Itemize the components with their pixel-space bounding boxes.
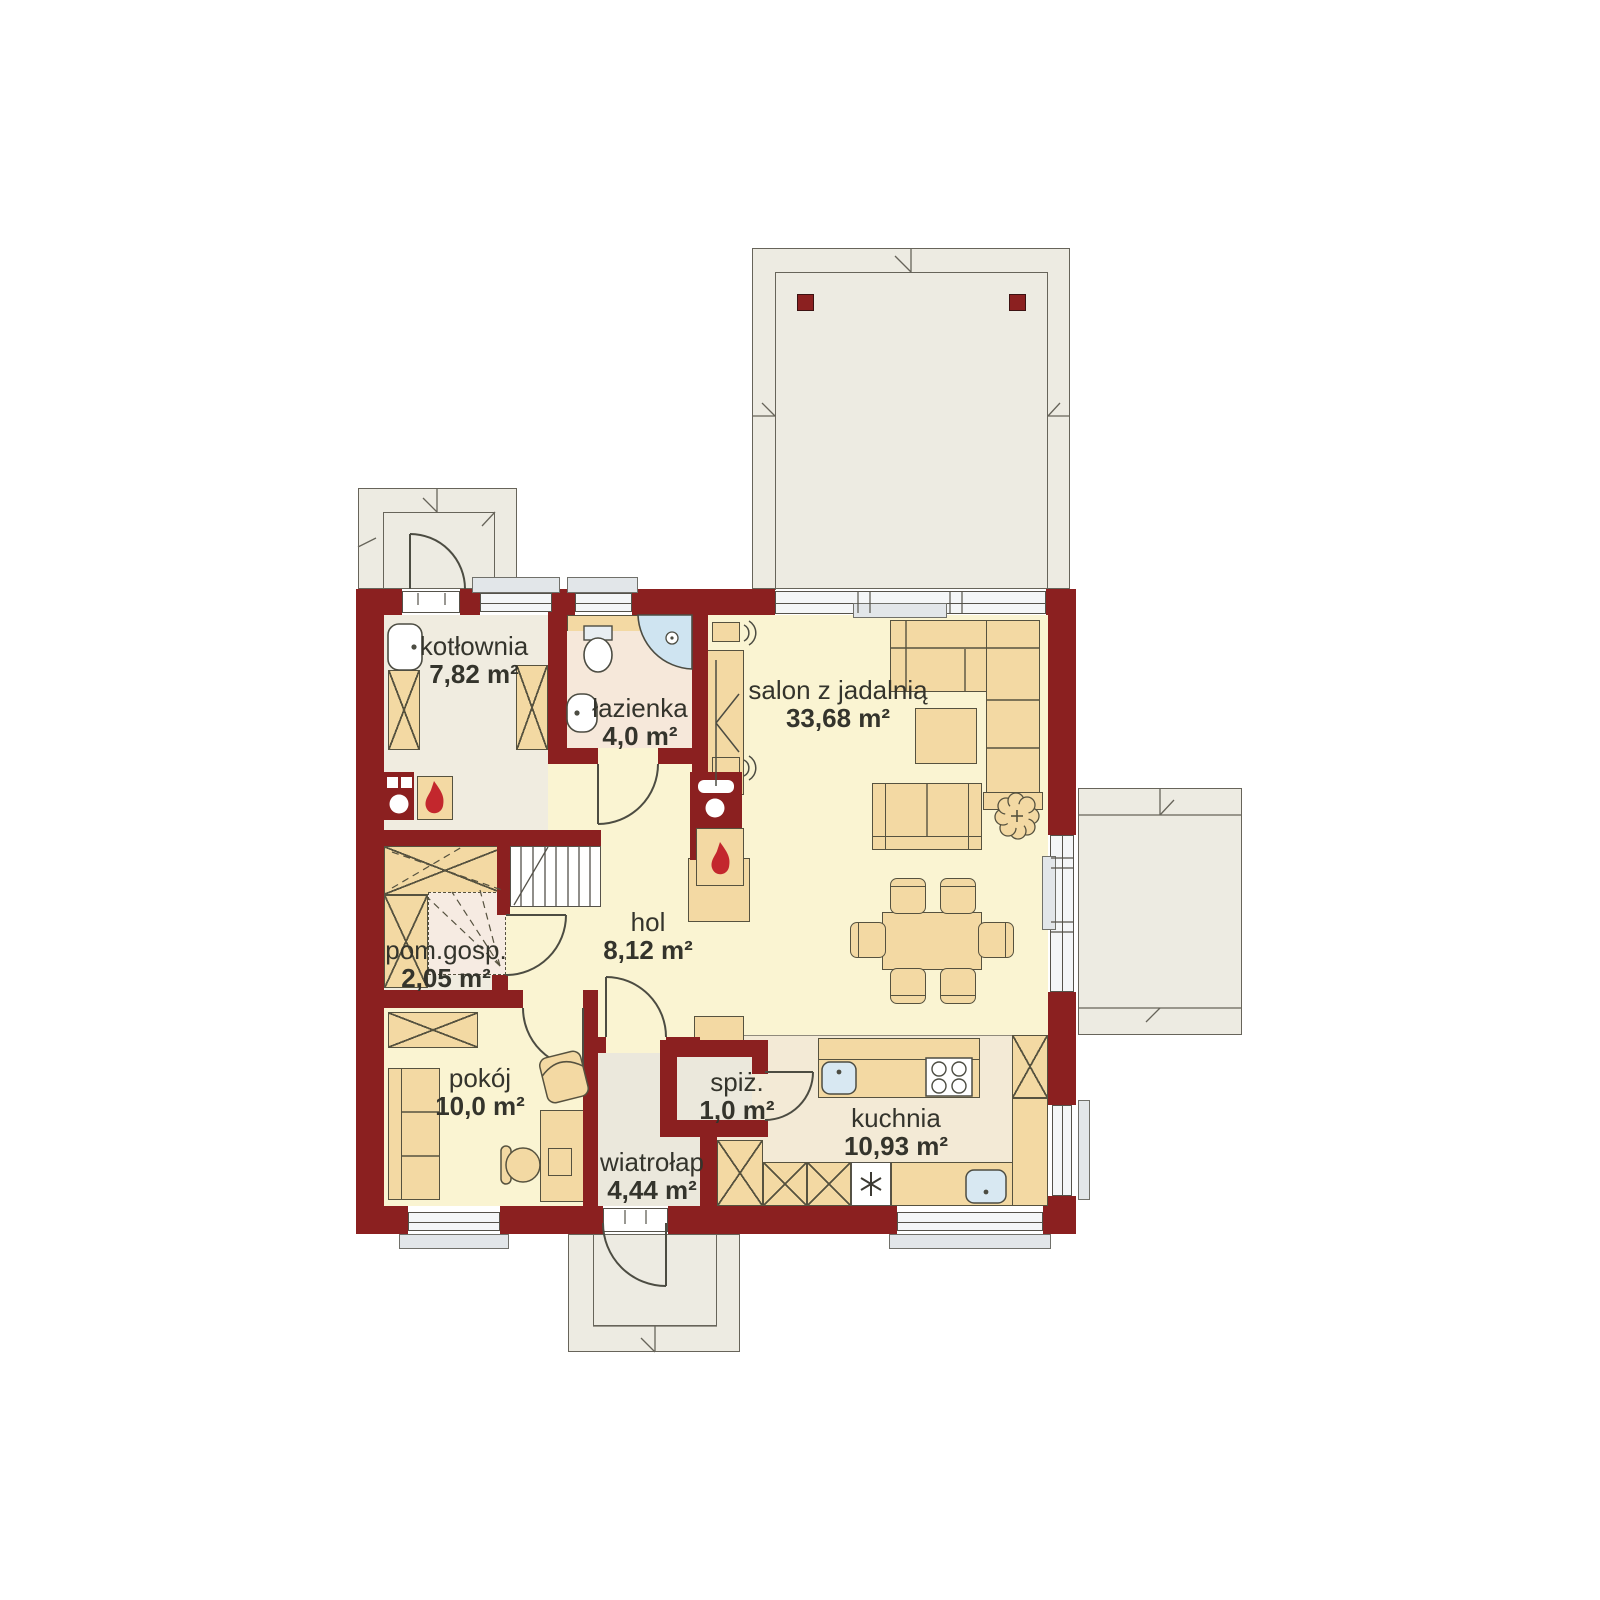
corner-sofa-armrest	[983, 792, 1043, 810]
tall-cabinet	[1012, 1035, 1048, 1098]
cabinet	[388, 670, 420, 750]
corner-sofa	[986, 620, 1040, 795]
speaker-icon	[712, 622, 740, 642]
wall	[692, 589, 708, 772]
room-name: spiż.	[699, 1068, 774, 1096]
stairs-upper-flight	[510, 846, 601, 907]
wall	[668, 1206, 897, 1234]
room-area: 33,68 m²	[748, 704, 927, 732]
room-label-wiatrolap: wiatrołap 4,44 m²	[600, 1148, 704, 1204]
wall	[590, 1037, 606, 1053]
dining-chair	[890, 968, 926, 1004]
room-name: wiatrołap	[600, 1148, 704, 1176]
wall	[1048, 589, 1076, 835]
kitchen-island	[818, 1038, 980, 1098]
cabinet	[388, 1012, 478, 1048]
cabinet	[717, 1140, 763, 1206]
room-label-spiz: spiż. 1,0 m²	[699, 1068, 774, 1124]
window	[480, 593, 552, 612]
wall	[497, 846, 510, 915]
wall	[583, 990, 598, 1206]
room-name: kotłownia	[420, 632, 528, 660]
boiler-switch	[401, 777, 412, 788]
room-area: 4,44 m²	[600, 1176, 704, 1204]
bathroom-counter	[567, 615, 692, 632]
sliding-panel	[853, 603, 947, 618]
room-area: 4,0 m²	[592, 722, 687, 750]
room-area: 2,05 m²	[385, 964, 506, 992]
fireplace-firebox	[696, 828, 744, 886]
room-name: hol	[603, 908, 693, 936]
room-area: 7,82 m²	[420, 660, 528, 688]
sofa-backrest	[873, 836, 981, 849]
kitchen-cabinet	[763, 1162, 807, 1206]
wall	[548, 589, 567, 764]
desk-monitor	[548, 1148, 572, 1176]
boiler-switch	[387, 777, 398, 788]
dining-chair	[940, 968, 976, 1004]
room-area: 1,0 m²	[699, 1096, 774, 1124]
room-name: salon z jadalnią	[748, 676, 927, 704]
room-name: pom.gosp.	[385, 936, 506, 964]
dining-table	[882, 912, 982, 970]
wall	[500, 1206, 603, 1234]
wall	[1048, 992, 1076, 1105]
wall	[356, 589, 402, 615]
stairs-lower-flight	[384, 846, 506, 895]
window-sill	[567, 577, 638, 593]
room-label-kotlownia: kotłownia 7,82 m²	[420, 632, 528, 688]
window-sill	[889, 1234, 1051, 1249]
terrace-post	[797, 294, 814, 311]
dining-chair	[850, 922, 886, 958]
top-terrace-inner-step	[775, 272, 1048, 590]
window-sill	[472, 577, 560, 593]
right-terrace	[1078, 788, 1242, 1035]
room-name: kuchnia	[844, 1104, 948, 1132]
window	[408, 1212, 500, 1231]
kitchen-cabinet	[807, 1162, 851, 1206]
terrace-post	[1009, 294, 1026, 311]
window-sill	[399, 1234, 509, 1249]
sofa-backrest	[389, 1069, 402, 1199]
room-label-kuchnia: kuchnia 10,93 m²	[844, 1104, 948, 1160]
wall	[356, 1206, 408, 1234]
furnace	[417, 776, 453, 820]
room-area: 10,0 m²	[435, 1092, 525, 1120]
room-area: 8,12 m²	[603, 936, 693, 964]
wall	[548, 748, 598, 764]
pantry-shelf	[694, 1016, 744, 1042]
wall	[356, 589, 384, 1234]
sliding-panel	[1042, 856, 1056, 930]
room-name: łazienka	[592, 694, 687, 722]
window	[1052, 1105, 1072, 1196]
room-label-salon: salon z jadalnią 33,68 m²	[748, 676, 927, 732]
door-threshold	[402, 591, 460, 613]
dining-chair	[940, 878, 976, 914]
sofa	[872, 783, 982, 850]
window	[897, 1212, 1043, 1231]
room-label-hol: hol 8,12 m²	[603, 908, 693, 964]
dining-chair	[978, 922, 1014, 958]
wall	[356, 830, 601, 846]
kitchen-floor-edge	[708, 1035, 1048, 1036]
window	[575, 593, 632, 612]
room-name: pokój	[435, 1064, 525, 1092]
floor-plan: kotłownia 7,82 m² łazienka 4,0 m² salon …	[0, 0, 1600, 1600]
kitchen-counter	[1012, 1098, 1048, 1206]
room-label-lazienka: łazienka 4,0 m²	[592, 694, 687, 750]
fridge	[851, 1162, 891, 1206]
entry-porch-step	[593, 1234, 717, 1326]
room-area: 10,93 m²	[844, 1132, 948, 1160]
island-counter-edge	[819, 1059, 979, 1060]
dining-chair	[890, 878, 926, 914]
room-label-pokoj: pokój 10,0 m²	[435, 1064, 525, 1120]
door-threshold	[603, 1208, 668, 1232]
window-sill	[1078, 1100, 1090, 1200]
sofa	[388, 1068, 440, 1200]
wall	[666, 1037, 700, 1053]
wall	[1043, 1206, 1076, 1234]
room-label-pom-gosp: pom.gosp. 2,05 m²	[385, 936, 506, 992]
